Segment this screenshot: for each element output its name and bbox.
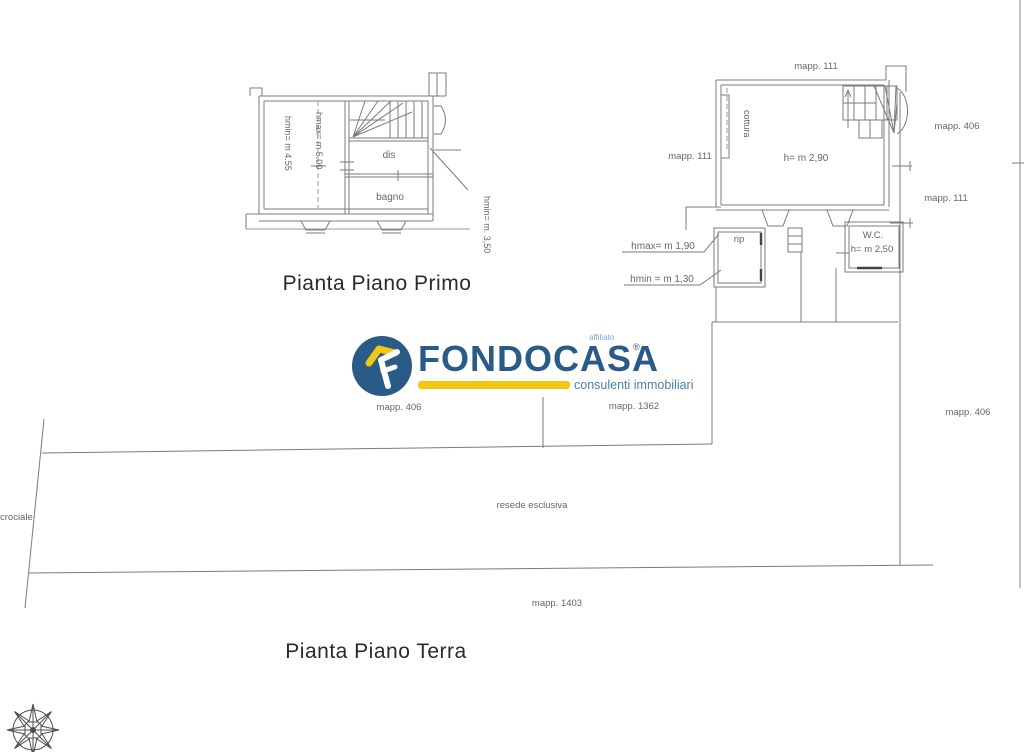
registered-mark: ® (633, 342, 640, 352)
first-floor-left-wall (259, 96, 264, 214)
room-label-rip: rip (734, 234, 745, 245)
first-floor-staircase (350, 101, 446, 138)
first-floor-bottom-left-step (246, 214, 259, 229)
ground-floor-bottom-wall (716, 205, 889, 210)
map-parcel-labels: mapp. 111 mapp. 406 mapp. 111 mapp. 111 … (377, 61, 991, 609)
ground-floor-staircase (843, 86, 908, 138)
hmin-label: hmin = m 1,30 (630, 274, 694, 285)
mapp-label-bottom: mapp. 1403 (532, 598, 582, 609)
ground-floor-left-wall (716, 80, 721, 207)
first-floor-hmin-right-label: hmin= m. 3,50 (482, 196, 492, 253)
mapp-label-right-mid: mapp. 111 (924, 193, 967, 204)
ground-floor-title: Pianta Piano Terra (285, 640, 466, 663)
fondocasa-brand-text: FONDOCASA (418, 338, 659, 380)
first-floor-chimney (429, 73, 446, 96)
first-floor-right-wall (428, 96, 433, 221)
fondocasa-logo-badge-icon (352, 336, 412, 396)
hmax-label: hmax= m 1,90 (631, 241, 695, 252)
main-room-height-label: h= m 2,90 (784, 153, 829, 164)
exterior-steps (788, 228, 802, 252)
first-floor-window-2 (377, 221, 406, 233)
room-label-dis: dis (383, 150, 396, 161)
right-boundary-mark-1 (892, 161, 912, 171)
resede-esclusiva-label: resede esclusiva (497, 500, 568, 511)
first-floor-window-1 (301, 221, 330, 233)
room-label-wc: W.C. (863, 230, 884, 241)
first-floor-hmax-left-label: hmax= m 5.00 (314, 112, 324, 169)
logo-tagline: consulenti immobiliari (574, 378, 694, 392)
first-floor-top-wall (259, 96, 446, 101)
street-label: crociale (0, 512, 33, 523)
ground-floor-plan: cottura h= m 2,90 rip W.C. h= m 2,50 hma… (622, 66, 913, 322)
logo-yellow-bar (418, 381, 570, 389)
first-floor-hmin-leader (430, 148, 468, 190)
site-parcel: resede esclusiva crociale Pianta Piano T… (0, 0, 1024, 663)
mapp-label-below-logo-left: mapp. 406 (377, 402, 422, 413)
room-label-bagno: bagno (376, 192, 404, 203)
parcel-bottom-boundary (29, 565, 933, 573)
first-floor-mid-wall (340, 101, 354, 214)
mapp-label-top: mapp. 111 (794, 61, 837, 72)
stylized-f-icon (352, 336, 412, 396)
mapp-label-left: mapp. 111 (668, 151, 711, 162)
first-floor-dis-bagno-wall (345, 170, 433, 181)
ground-floor-corridor-wall (686, 207, 721, 230)
parcel-top-boundary (42, 444, 712, 453)
first-floor-hmin-left-label: hmin= m 4.55 (283, 116, 293, 171)
first-floor-bottom-wall (259, 209, 433, 221)
parcel-building-boundary (712, 322, 898, 444)
mapp-label-below-logo-right: mapp. 1362 (609, 401, 659, 412)
ground-floor-top-wall (716, 80, 886, 85)
affiliate-label: affiliato (589, 333, 614, 342)
wc-height-label: h= m 2,50 (851, 244, 894, 255)
first-floor-stair-wall (349, 138, 428, 141)
ground-floor-door-1 (762, 210, 789, 226)
first-floor-top-left-step (250, 88, 262, 96)
cottura-counter (721, 95, 729, 158)
fondocasa-logo: FONDOCASA ® affiliato consulenti immobil… (352, 336, 652, 400)
room-label-cottura: cottura (742, 110, 752, 138)
compass-rose-icon (7, 704, 59, 752)
mapp-label-bottom-right: mapp. 406 (946, 407, 991, 418)
first-floor-title: Pianta Piano Primo (283, 272, 472, 295)
mapp-label-right-upper: mapp. 406 (935, 121, 980, 132)
ground-floor-door-2 (827, 210, 853, 226)
first-floor-plan: hmin= m 4.55 hmax= m 5.00 dis bagno hmin… (246, 73, 492, 295)
floor-plan-document: hmin= m 4.55 hmax= m 5.00 dis bagno hmin… (0, 0, 1024, 752)
